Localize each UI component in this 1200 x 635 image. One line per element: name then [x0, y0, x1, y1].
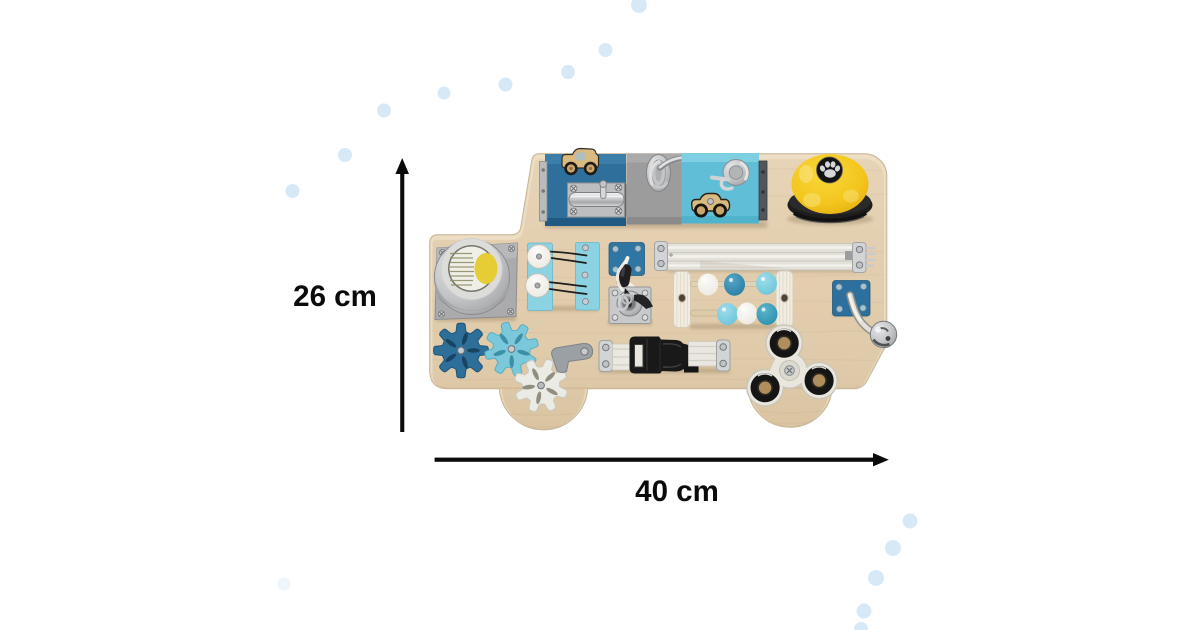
svg-text:26 cm: 26 cm [293, 280, 377, 313]
svg-text:40 cm: 40 cm [635, 475, 719, 508]
